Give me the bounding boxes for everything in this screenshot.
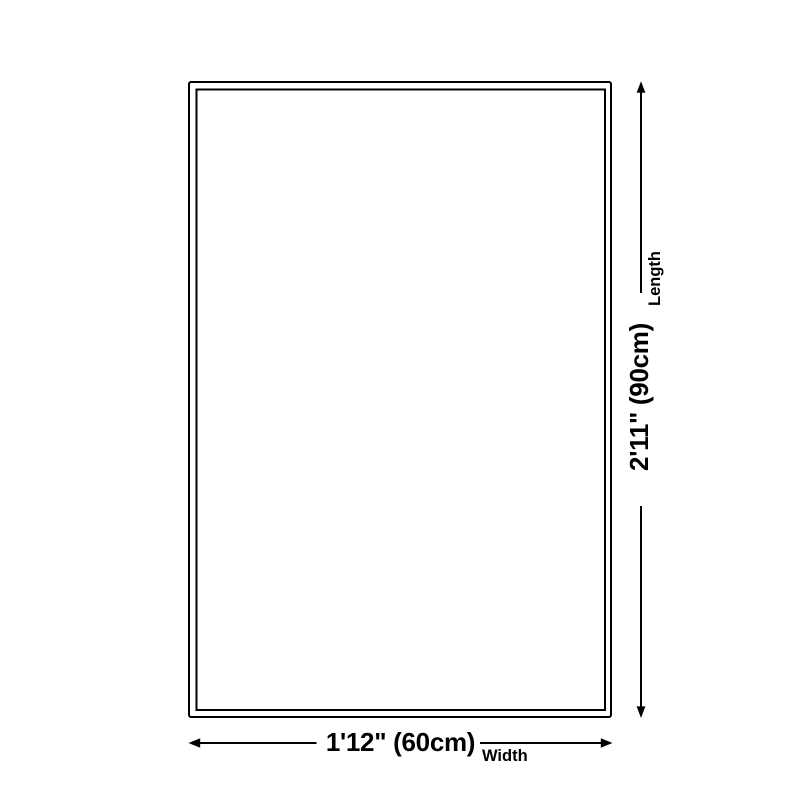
svg-text:2'11" (90cm): 2'11" (90cm): [624, 323, 654, 471]
svg-text:Length: Length: [646, 251, 664, 306]
svg-text:1'12" (60cm): 1'12" (60cm): [326, 727, 475, 757]
svg-text:Width: Width: [482, 747, 528, 765]
